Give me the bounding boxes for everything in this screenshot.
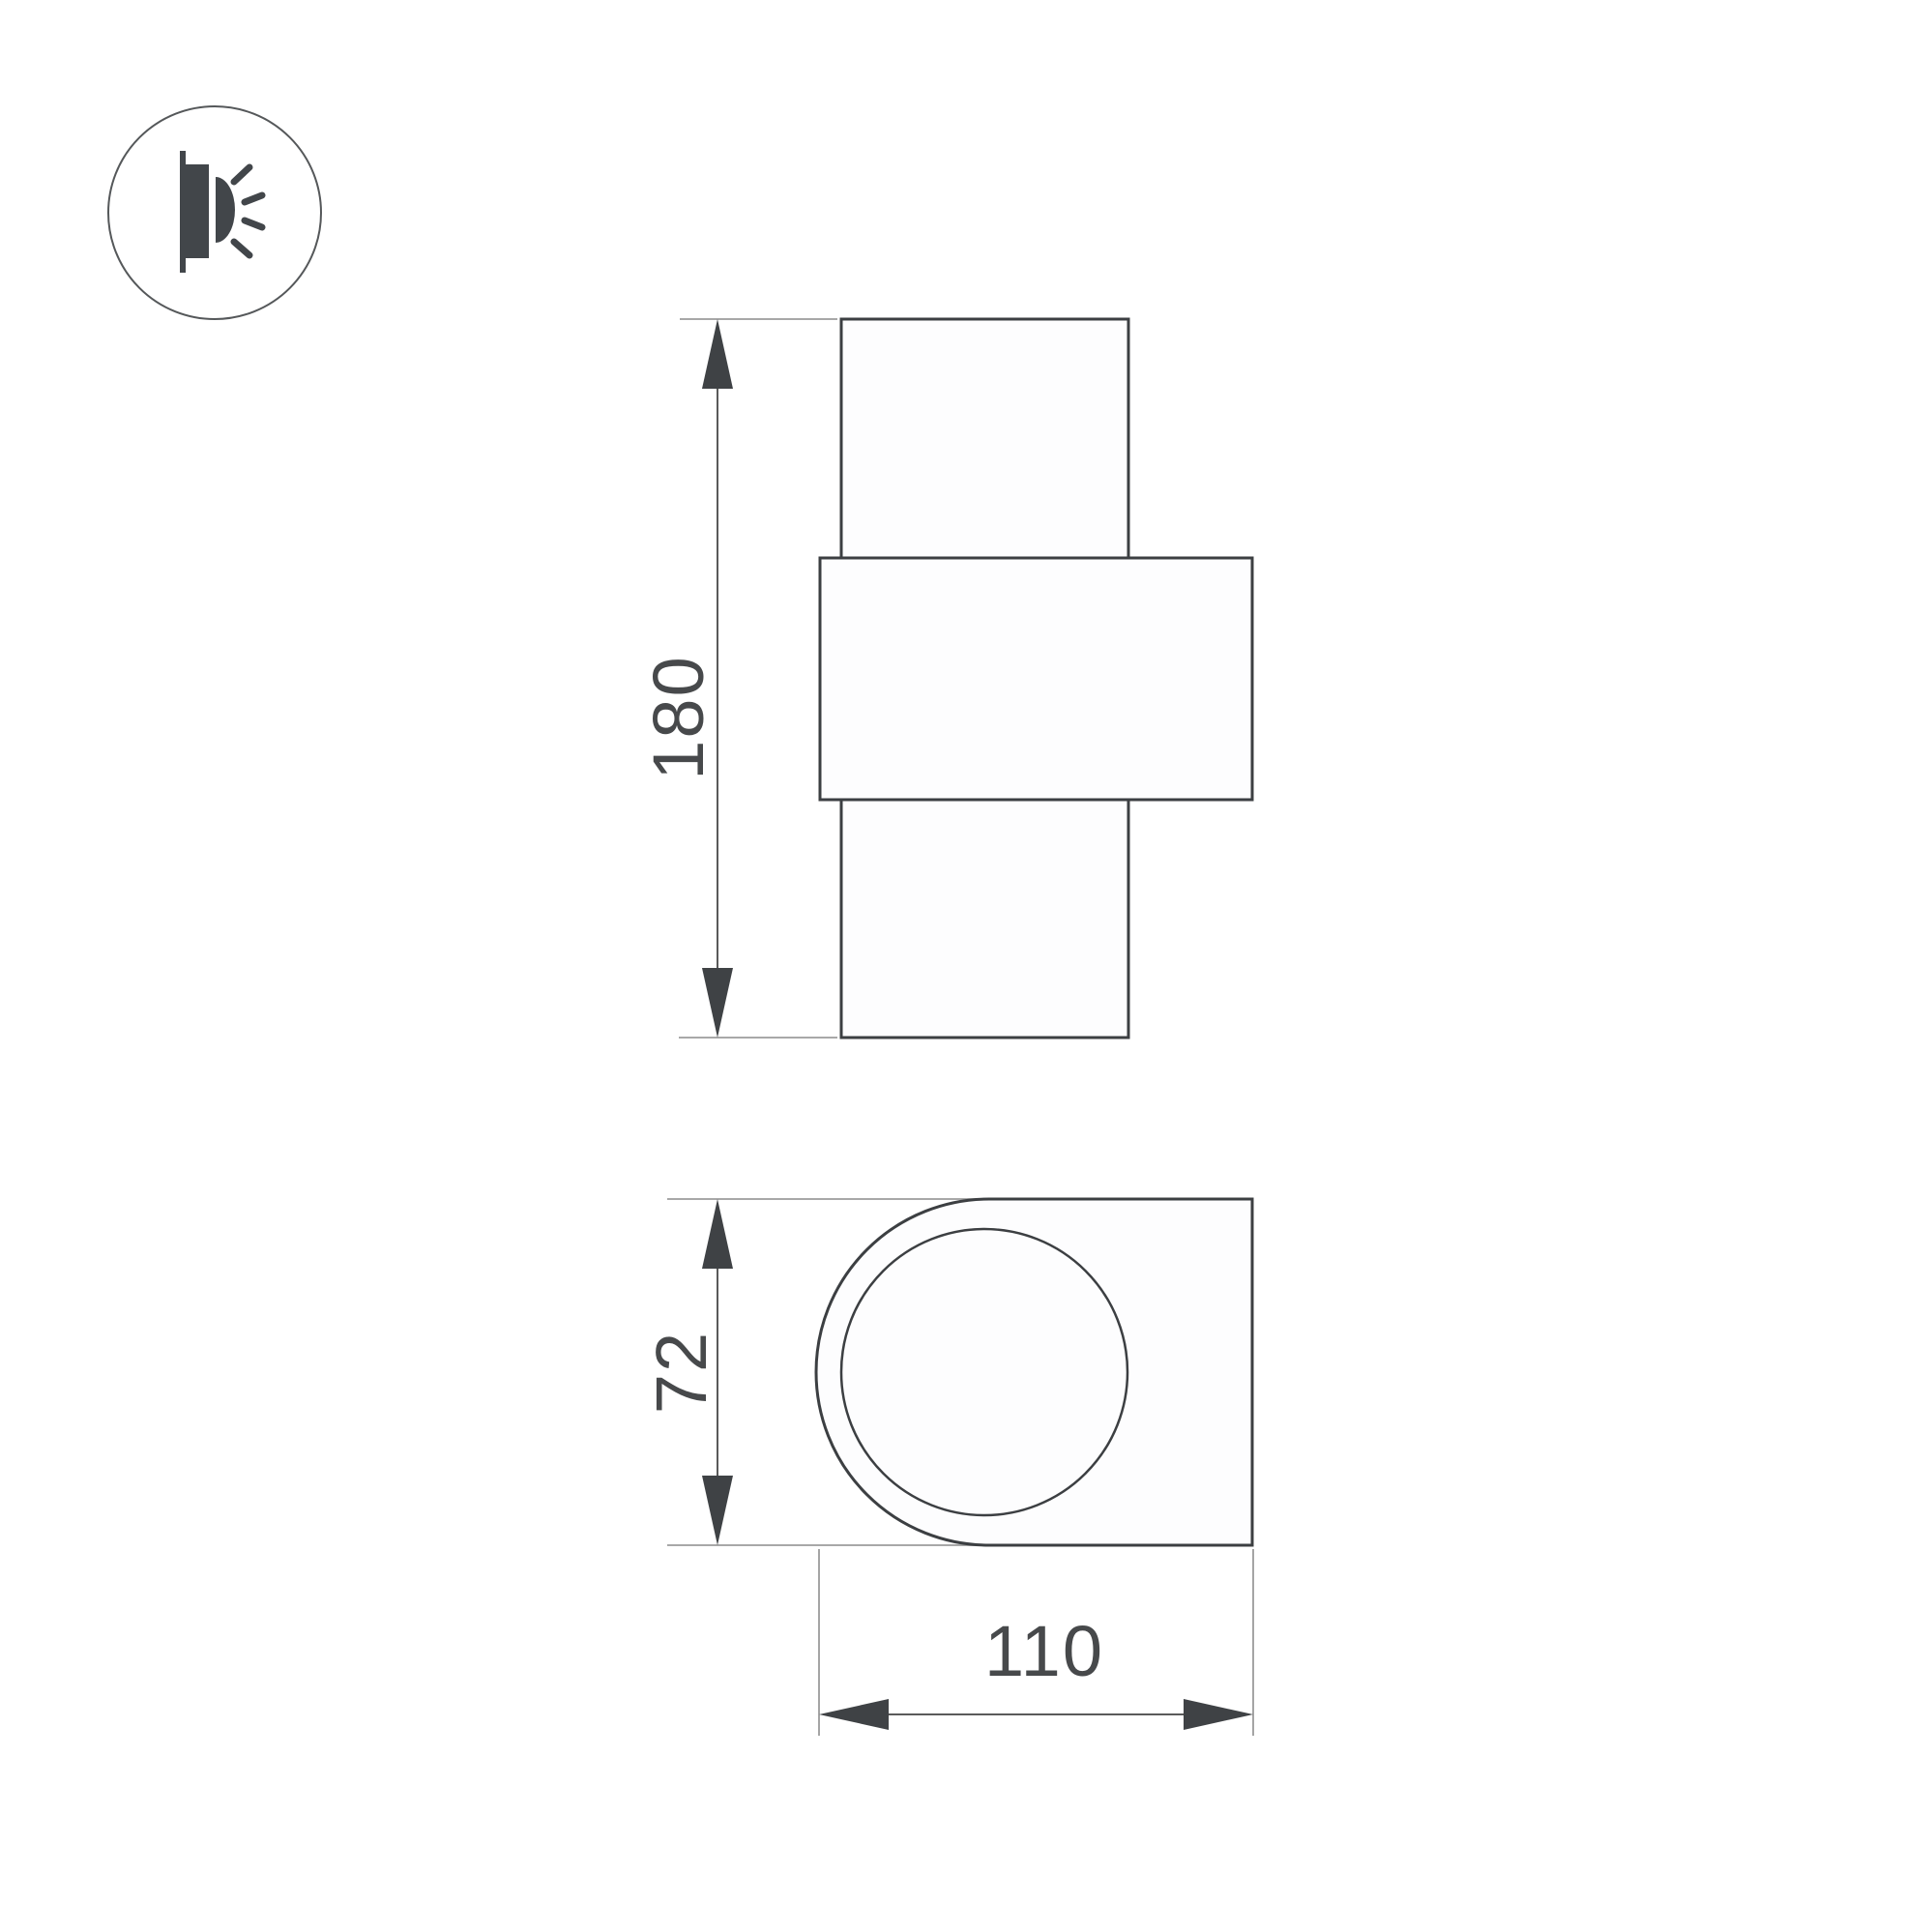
- wall-light-icon-badge: [108, 106, 321, 319]
- arrowhead-right: [1184, 1699, 1253, 1730]
- side-body-outline: [816, 1199, 1252, 1545]
- arrowhead-down: [702, 968, 733, 1038]
- depth-dimension-label: 72: [641, 1331, 721, 1414]
- arrowhead-up: [702, 1199, 733, 1269]
- front-view: 180: [638, 319, 1252, 1038]
- front-middle-housing: [820, 558, 1252, 800]
- dimension-drawing-svg: 180 72 110: [0, 0, 1932, 1932]
- front-upper-cylinder: [841, 319, 1128, 558]
- side-view: 72 110: [641, 1199, 1253, 1736]
- width-dimension-label: 110: [984, 1611, 1104, 1691]
- front-lower-cylinder: [841, 800, 1128, 1038]
- arrowhead-left: [819, 1699, 889, 1730]
- lamp-body-icon: [185, 164, 209, 258]
- arrowhead-down: [702, 1476, 733, 1545]
- height-dimension-label: 180: [638, 655, 718, 779]
- icon-badge-circle: [108, 106, 321, 319]
- arrowhead-up: [702, 319, 733, 389]
- technical-drawing-canvas: 180 72 110: [0, 0, 1932, 1932]
